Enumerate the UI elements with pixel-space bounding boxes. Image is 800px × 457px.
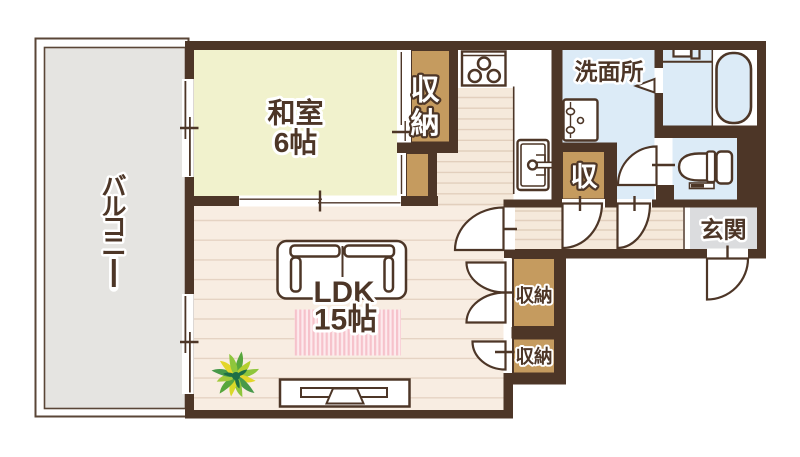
svg-text:6帖: 6帖 [274,127,318,158]
svg-text:収: 収 [571,162,599,192]
svg-text:納: 納 [410,106,439,140]
svg-text:洗面所: 洗面所 [575,59,644,85]
svg-text:15帖: 15帖 [314,304,377,337]
svg-text:収納: 収納 [515,346,552,367]
svg-text:収納: 収納 [515,285,552,306]
svg-text:収: 収 [410,74,440,107]
svg-text:和室: 和室 [267,97,323,129]
svg-text:玄関: 玄関 [701,217,747,243]
